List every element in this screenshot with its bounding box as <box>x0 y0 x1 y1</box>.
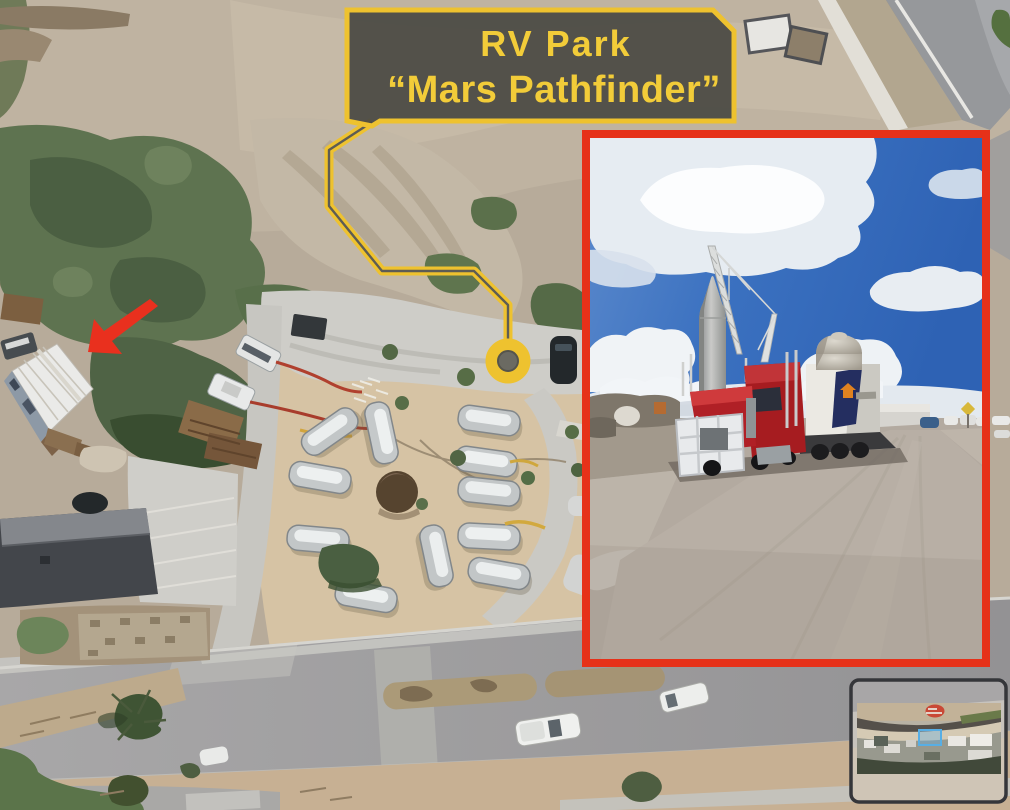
svg-text:“Mars Pathfinder”: “Mars Pathfinder” <box>387 69 721 111</box>
svg-text:RV Park: RV Park <box>480 23 631 64</box>
